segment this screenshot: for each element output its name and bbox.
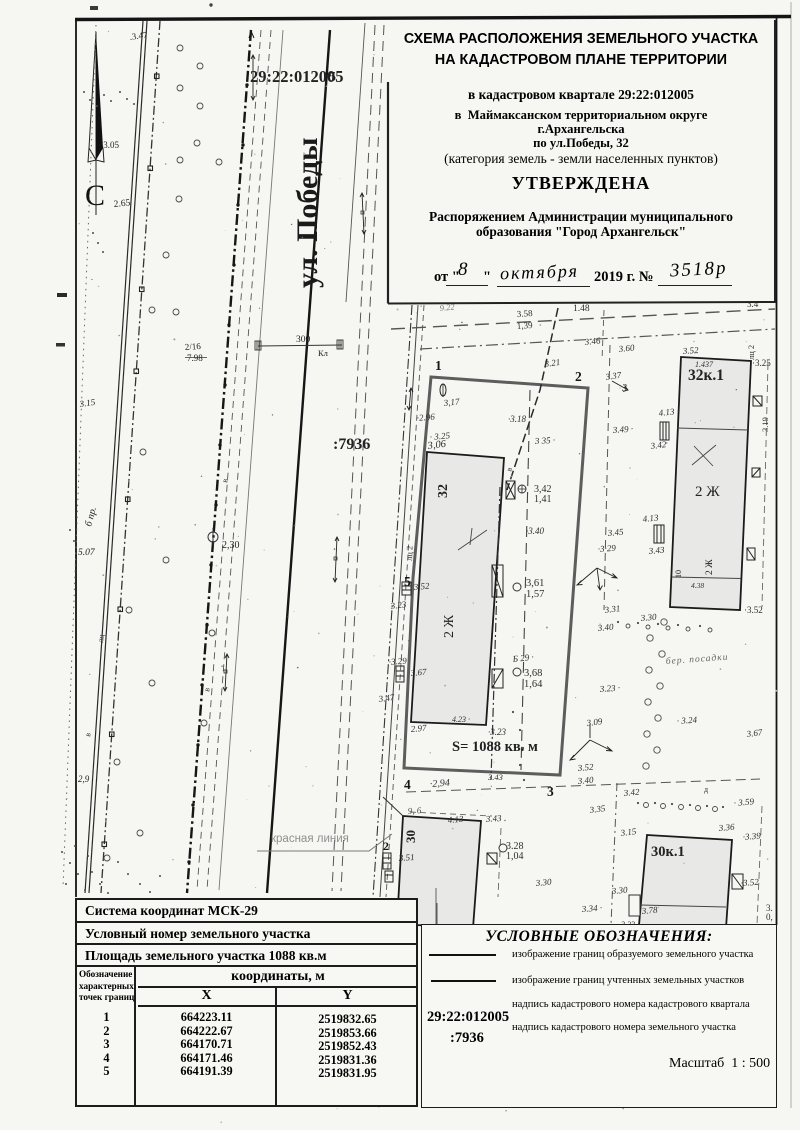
svg-text:3.21: 3.21	[543, 357, 561, 369]
svg-text:·3.40: ·3.40	[526, 526, 545, 536]
svg-text:3.67: 3.67	[409, 667, 427, 678]
svg-text:3.52: 3.52	[576, 762, 594, 773]
svg-text:в: в	[220, 478, 230, 484]
svg-text:ул. Победы: ул. Победы	[291, 137, 324, 288]
svg-text:1,41: 1,41	[534, 494, 552, 505]
svg-text:3.45: 3.45	[606, 527, 624, 538]
svg-text:3.52: 3.52	[681, 345, 699, 356]
svg-text:3.58: 3.58	[516, 308, 533, 319]
svg-text:5.07: 5.07	[78, 548, 96, 558]
svg-text:3.23 ·: 3.23 ·	[598, 683, 620, 694]
svg-text:10: 10	[674, 570, 683, 578]
svg-text:2: 2	[575, 369, 582, 384]
svg-text:3.51: 3.51	[397, 852, 414, 863]
svg-text:1: 1	[435, 358, 442, 373]
svg-text:·2.96: ·2.96	[416, 411, 435, 423]
svg-text:лц 2: лц 2	[404, 546, 415, 562]
svg-text:30к.1: 30к.1	[651, 844, 685, 860]
svg-text:·3.52: ·3.52	[744, 605, 763, 615]
svg-text:4: 4	[404, 777, 411, 792]
svg-text:32к.1: 32к.1	[688, 367, 724, 384]
svg-text::7936: :7936	[333, 436, 370, 453]
svg-text:9, 6: 9, 6	[407, 805, 422, 816]
svg-text:в: в	[83, 732, 93, 738]
svg-text:1,57: 1,57	[526, 589, 544, 600]
svg-text:0,: 0,	[766, 912, 773, 922]
svg-text:4.38: 4.38	[691, 581, 704, 590]
svg-text:3,61: 3,61	[526, 578, 544, 589]
svg-text:·3·29: ·3·29	[597, 543, 616, 554]
svg-text:3.30: 3.30	[639, 612, 657, 623]
svg-text:1,04: 1,04	[506, 851, 524, 862]
svg-text:3.30: 3.30	[534, 877, 552, 888]
svg-text:2 Ж: 2 Ж	[442, 615, 457, 639]
svg-text:30: 30	[403, 830, 418, 843]
svg-text:2 Ж: 2 Ж	[695, 484, 720, 500]
svg-text:лц: лц	[96, 633, 106, 643]
svg-text:2,9: 2,9	[78, 774, 90, 784]
svg-text:5: 5	[329, 70, 336, 85]
svg-text:3: 3	[547, 784, 554, 799]
svg-text:2.65: 2.65	[113, 198, 131, 210]
svg-text:3,06: 3,06	[426, 439, 447, 452]
svg-text:3.15: 3.15	[619, 826, 637, 838]
svg-text:д: д	[704, 785, 708, 794]
svg-text:красная линия: красная линия	[271, 833, 349, 845]
svg-text:3.67: 3.67	[745, 727, 763, 739]
svg-text:1.437: 1.437	[695, 360, 714, 369]
svg-text:·3.52: ·3.52	[740, 877, 759, 888]
svg-text:1,64: 1,64	[524, 679, 543, 690]
svg-text:3.23: 3.23	[389, 599, 407, 611]
svg-text:1.48: 1.48	[573, 304, 590, 314]
svg-text:· 3.59: · 3.59	[733, 796, 755, 808]
svg-text:С: С	[85, 179, 105, 212]
svg-text:1,39: 1,39	[516, 320, 533, 331]
svg-text:3.34 ·: 3.34 ·	[580, 903, 602, 914]
svg-text:32: 32	[436, 484, 451, 498]
svg-text:3.35: 3.35	[588, 803, 606, 815]
svg-text:3: 3	[621, 383, 627, 394]
svg-text:3.43: 3.43	[647, 545, 665, 556]
svg-text:3.37: 3.37	[604, 370, 622, 382]
svg-text:б пр.: б пр.	[83, 506, 99, 528]
svg-text:бер. посадки: бер. посадки	[665, 652, 728, 667]
svg-text:·3.18: ·3.18	[508, 414, 527, 424]
svg-text:в: в	[202, 687, 212, 693]
svg-text:3.19: 3.19	[760, 417, 770, 432]
svg-text:3.09: 3.09	[585, 716, 603, 728]
svg-text:3.31: 3.31	[603, 603, 621, 615]
svg-text:3.78: 3.78	[640, 905, 658, 916]
svg-text:3.42: 3.42	[649, 439, 667, 451]
svg-text:2/16: 2/16	[184, 341, 201, 352]
svg-text:2.97: 2.97	[410, 723, 427, 734]
svg-text:4.23 ·: 4.23 ·	[452, 715, 470, 724]
svg-text:·3.23: ·3.23	[488, 727, 507, 737]
svg-text:3.60: 3.60	[617, 342, 635, 354]
svg-text:·3.29: ·3.29	[388, 655, 407, 667]
svg-text:3.40: 3.40	[576, 775, 594, 786]
svg-text:4.13: 4.13	[642, 512, 659, 524]
svg-text:3.52: 3.52	[412, 581, 430, 592]
svg-text:·2,94: ·2,94	[429, 778, 450, 790]
svg-text:2 Ж: 2 Ж	[705, 559, 715, 575]
svg-text:3.30: 3.30	[610, 885, 628, 896]
svg-text:4.13: 4.13	[447, 814, 464, 825]
svg-text:3.43: 3.43	[484, 813, 502, 824]
svg-text:300: 300	[296, 335, 311, 345]
svg-text:7.98: 7.98	[187, 353, 203, 363]
svg-text:· 3.05: · 3.05	[98, 140, 119, 150]
svg-text:3.43: 3.43	[487, 772, 503, 782]
svg-text:3.36: 3.36	[717, 822, 735, 833]
svg-text:S= 1088 кв. м: S= 1088 кв. м	[452, 739, 538, 755]
svg-text:3.49 ·: 3.49 ·	[611, 424, 633, 435]
svg-text:3.46: 3.46	[583, 335, 601, 347]
svg-text:3,17: 3,17	[442, 396, 460, 408]
svg-text:3 35 ·: 3 35 ·	[534, 435, 556, 446]
svg-text:Б 29 ·: Б 29 ·	[511, 652, 534, 664]
svg-text:4.13: 4.13	[658, 406, 675, 418]
svg-text:· 3.24: · 3.24	[676, 715, 697, 726]
svg-text:2,30: 2,30	[222, 540, 240, 551]
svg-text:Кл: Кл	[318, 348, 329, 358]
svg-text:2: 2	[383, 839, 389, 853]
svg-text:3.47: 3.47	[377, 692, 395, 704]
svg-text:3.42: 3.42	[622, 787, 640, 798]
svg-text:3,68: 3,68	[524, 668, 542, 679]
svg-text:3.40: 3.40	[596, 622, 614, 633]
svg-text:3.15: 3.15	[78, 397, 96, 409]
svg-text:в: в	[504, 466, 514, 473]
svg-text:·3.25: ·3.25	[752, 358, 771, 368]
svg-text:·3.39: ·3.39	[742, 830, 761, 842]
svg-text:5: 5	[404, 574, 411, 589]
